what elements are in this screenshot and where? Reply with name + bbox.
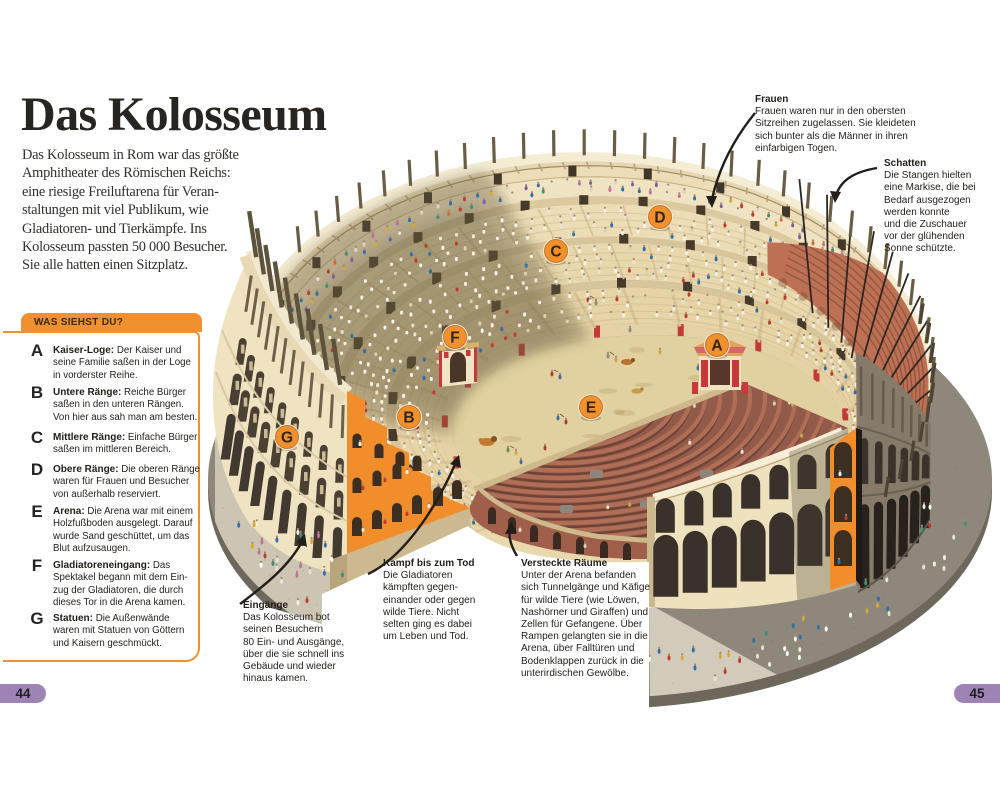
svg-text:A: A <box>711 338 722 355</box>
svg-text:C: C <box>550 244 561 261</box>
svg-text:E: E <box>586 400 596 417</box>
svg-text:B: B <box>403 410 414 427</box>
svg-text:G: G <box>281 430 293 447</box>
svg-text:F: F <box>450 330 459 347</box>
svg-text:D: D <box>654 210 665 227</box>
